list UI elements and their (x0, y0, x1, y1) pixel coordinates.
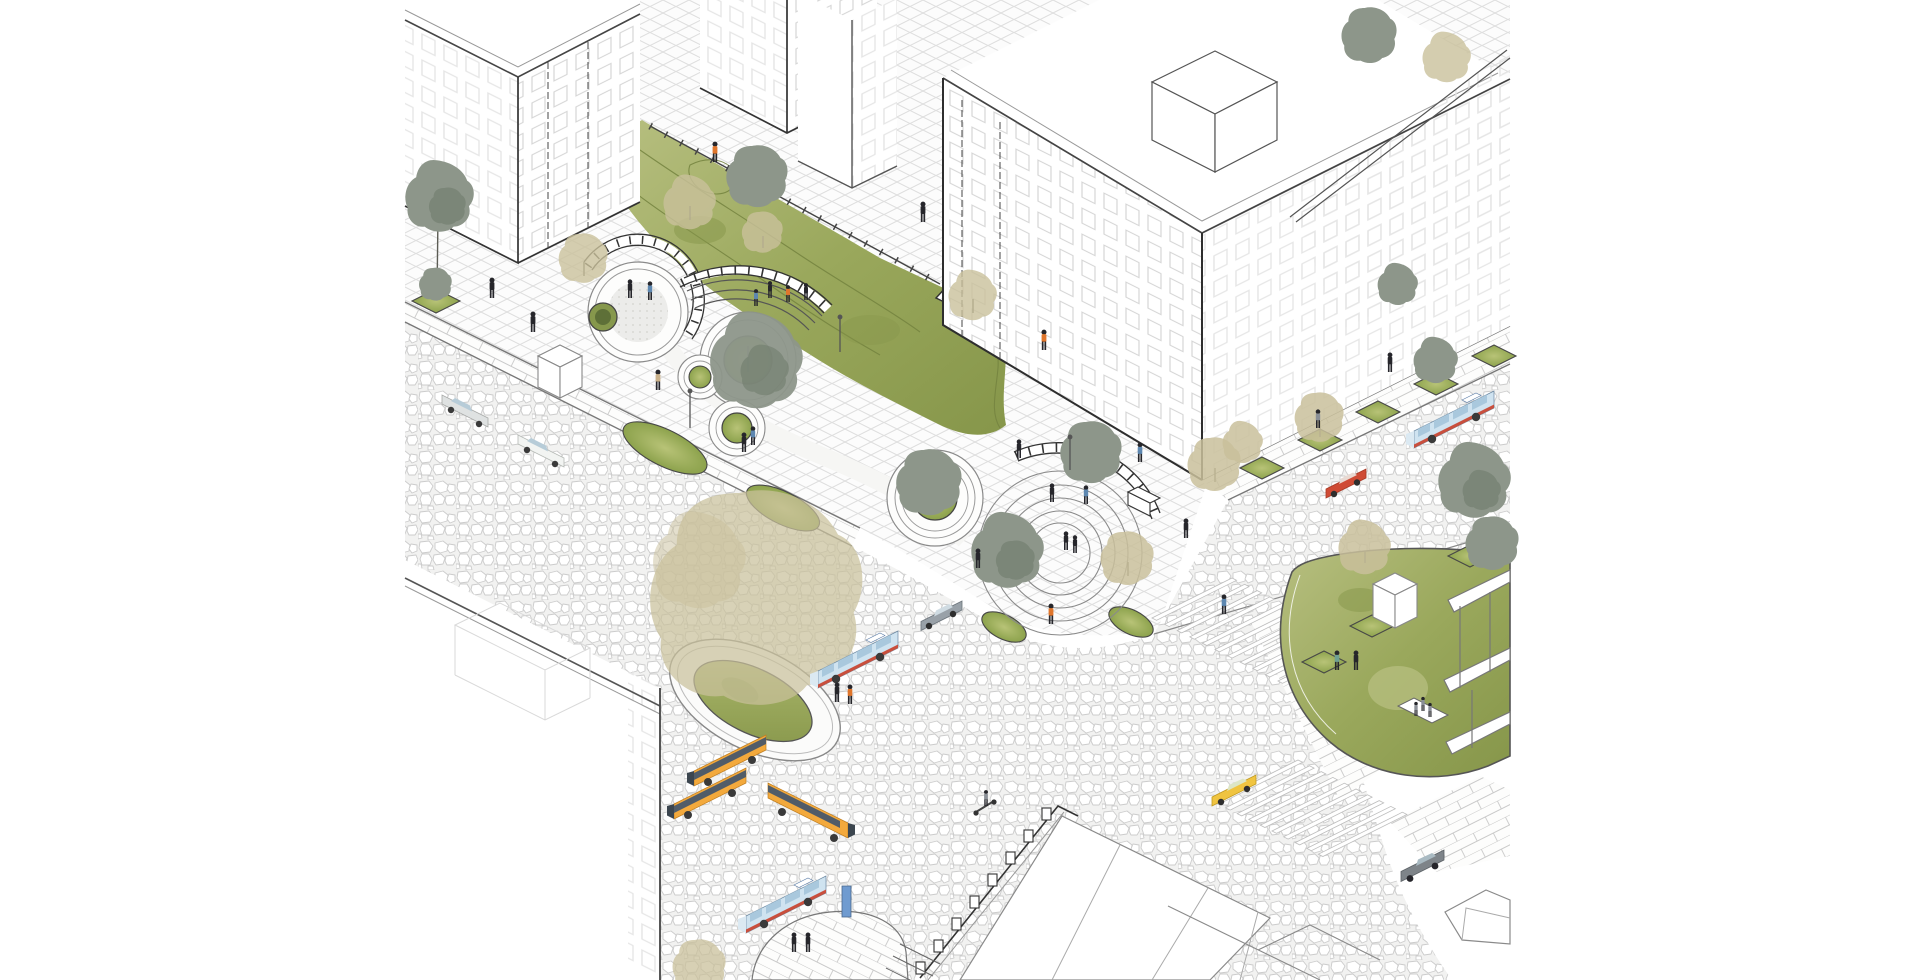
right-teardrop-lawn (1281, 548, 1510, 776)
oval-bus-island (650, 614, 859, 786)
balustrade (886, 806, 1078, 980)
light-gray-car (442, 395, 488, 427)
ring-planter-small (678, 355, 722, 399)
bus-stop-totem (842, 886, 851, 917)
right-upper-sidewalk (1202, 326, 1510, 500)
crosswalk-upper (1152, 578, 1363, 683)
building-bottom-center (886, 806, 1380, 980)
building-bottom-left (405, 560, 660, 980)
mound-planter (977, 606, 1031, 649)
street-furniture (688, 315, 1072, 917)
building-right-large (943, 0, 1510, 480)
illustration-canvas (0, 0, 1920, 980)
vehicles (442, 385, 1506, 933)
cobblestone-street (405, 322, 1510, 980)
blue-bus-1 (1406, 385, 1506, 448)
pedestrians (489, 142, 1431, 952)
rooftop-box (1152, 51, 1277, 172)
sage-tree (405, 7, 1518, 588)
left-sidewalk (405, 302, 860, 546)
ring-planter-east (887, 450, 983, 546)
right-lower-sidewalk (1250, 574, 1398, 800)
crosswalk-lower (1214, 760, 1407, 857)
mound-planter (1104, 601, 1158, 644)
blue-bus-2 (810, 625, 910, 688)
lawn-fence (650, 126, 940, 284)
ground (405, 0, 1510, 980)
building-bottom-right-corner (1445, 890, 1510, 944)
ring-planter-large (700, 312, 796, 408)
kiosk-cube (1373, 573, 1417, 628)
blue-bus-3 (738, 870, 838, 933)
terrace-pool-planter (589, 303, 617, 331)
khaki-tree (559, 32, 1471, 980)
accessibility-ramp (936, 280, 1060, 352)
terrace-railing (584, 234, 704, 339)
main-park-lawn (608, 120, 1006, 435)
ring-planter-medium (709, 400, 765, 456)
white-car (518, 435, 564, 467)
plaza-arc-bench (1014, 443, 1160, 519)
mound-planters (616, 411, 1158, 648)
trees (405, 7, 1518, 980)
mound-planter (616, 411, 714, 484)
amphitheater-benches (680, 266, 832, 330)
bottom-right-sidewalk (1390, 776, 1510, 872)
bus-stop-island (752, 911, 908, 980)
lamp-posts (688, 315, 1072, 470)
building-top-left (405, 0, 640, 263)
concentric-ring-plaza (978, 471, 1142, 635)
yellow-bus-1 (687, 730, 777, 787)
scooter-rider (973, 790, 996, 816)
red-car (1326, 469, 1366, 498)
taxi (1212, 775, 1256, 806)
pergola-structure (1444, 570, 1510, 754)
gray-suv (1401, 850, 1444, 882)
ghost-background-facade (1290, 48, 1510, 330)
tree-trunks (437, 206, 1436, 576)
building-top-mid (700, 0, 877, 133)
mound-planter (740, 476, 826, 540)
gray-car (921, 601, 962, 631)
yellow-bus-3 (757, 778, 855, 843)
diamond-planters (412, 289, 1516, 673)
building-top-mid-2 (798, 0, 897, 188)
park-plaza-platform (405, 0, 1510, 635)
kiosk-cube (538, 345, 582, 398)
yellow-bus-2 (667, 763, 757, 820)
sage-tree-shadows (429, 188, 1501, 580)
round-terrace (584, 234, 704, 362)
sculpture-plinth (1398, 698, 1448, 723)
connector-path (660, 335, 965, 540)
